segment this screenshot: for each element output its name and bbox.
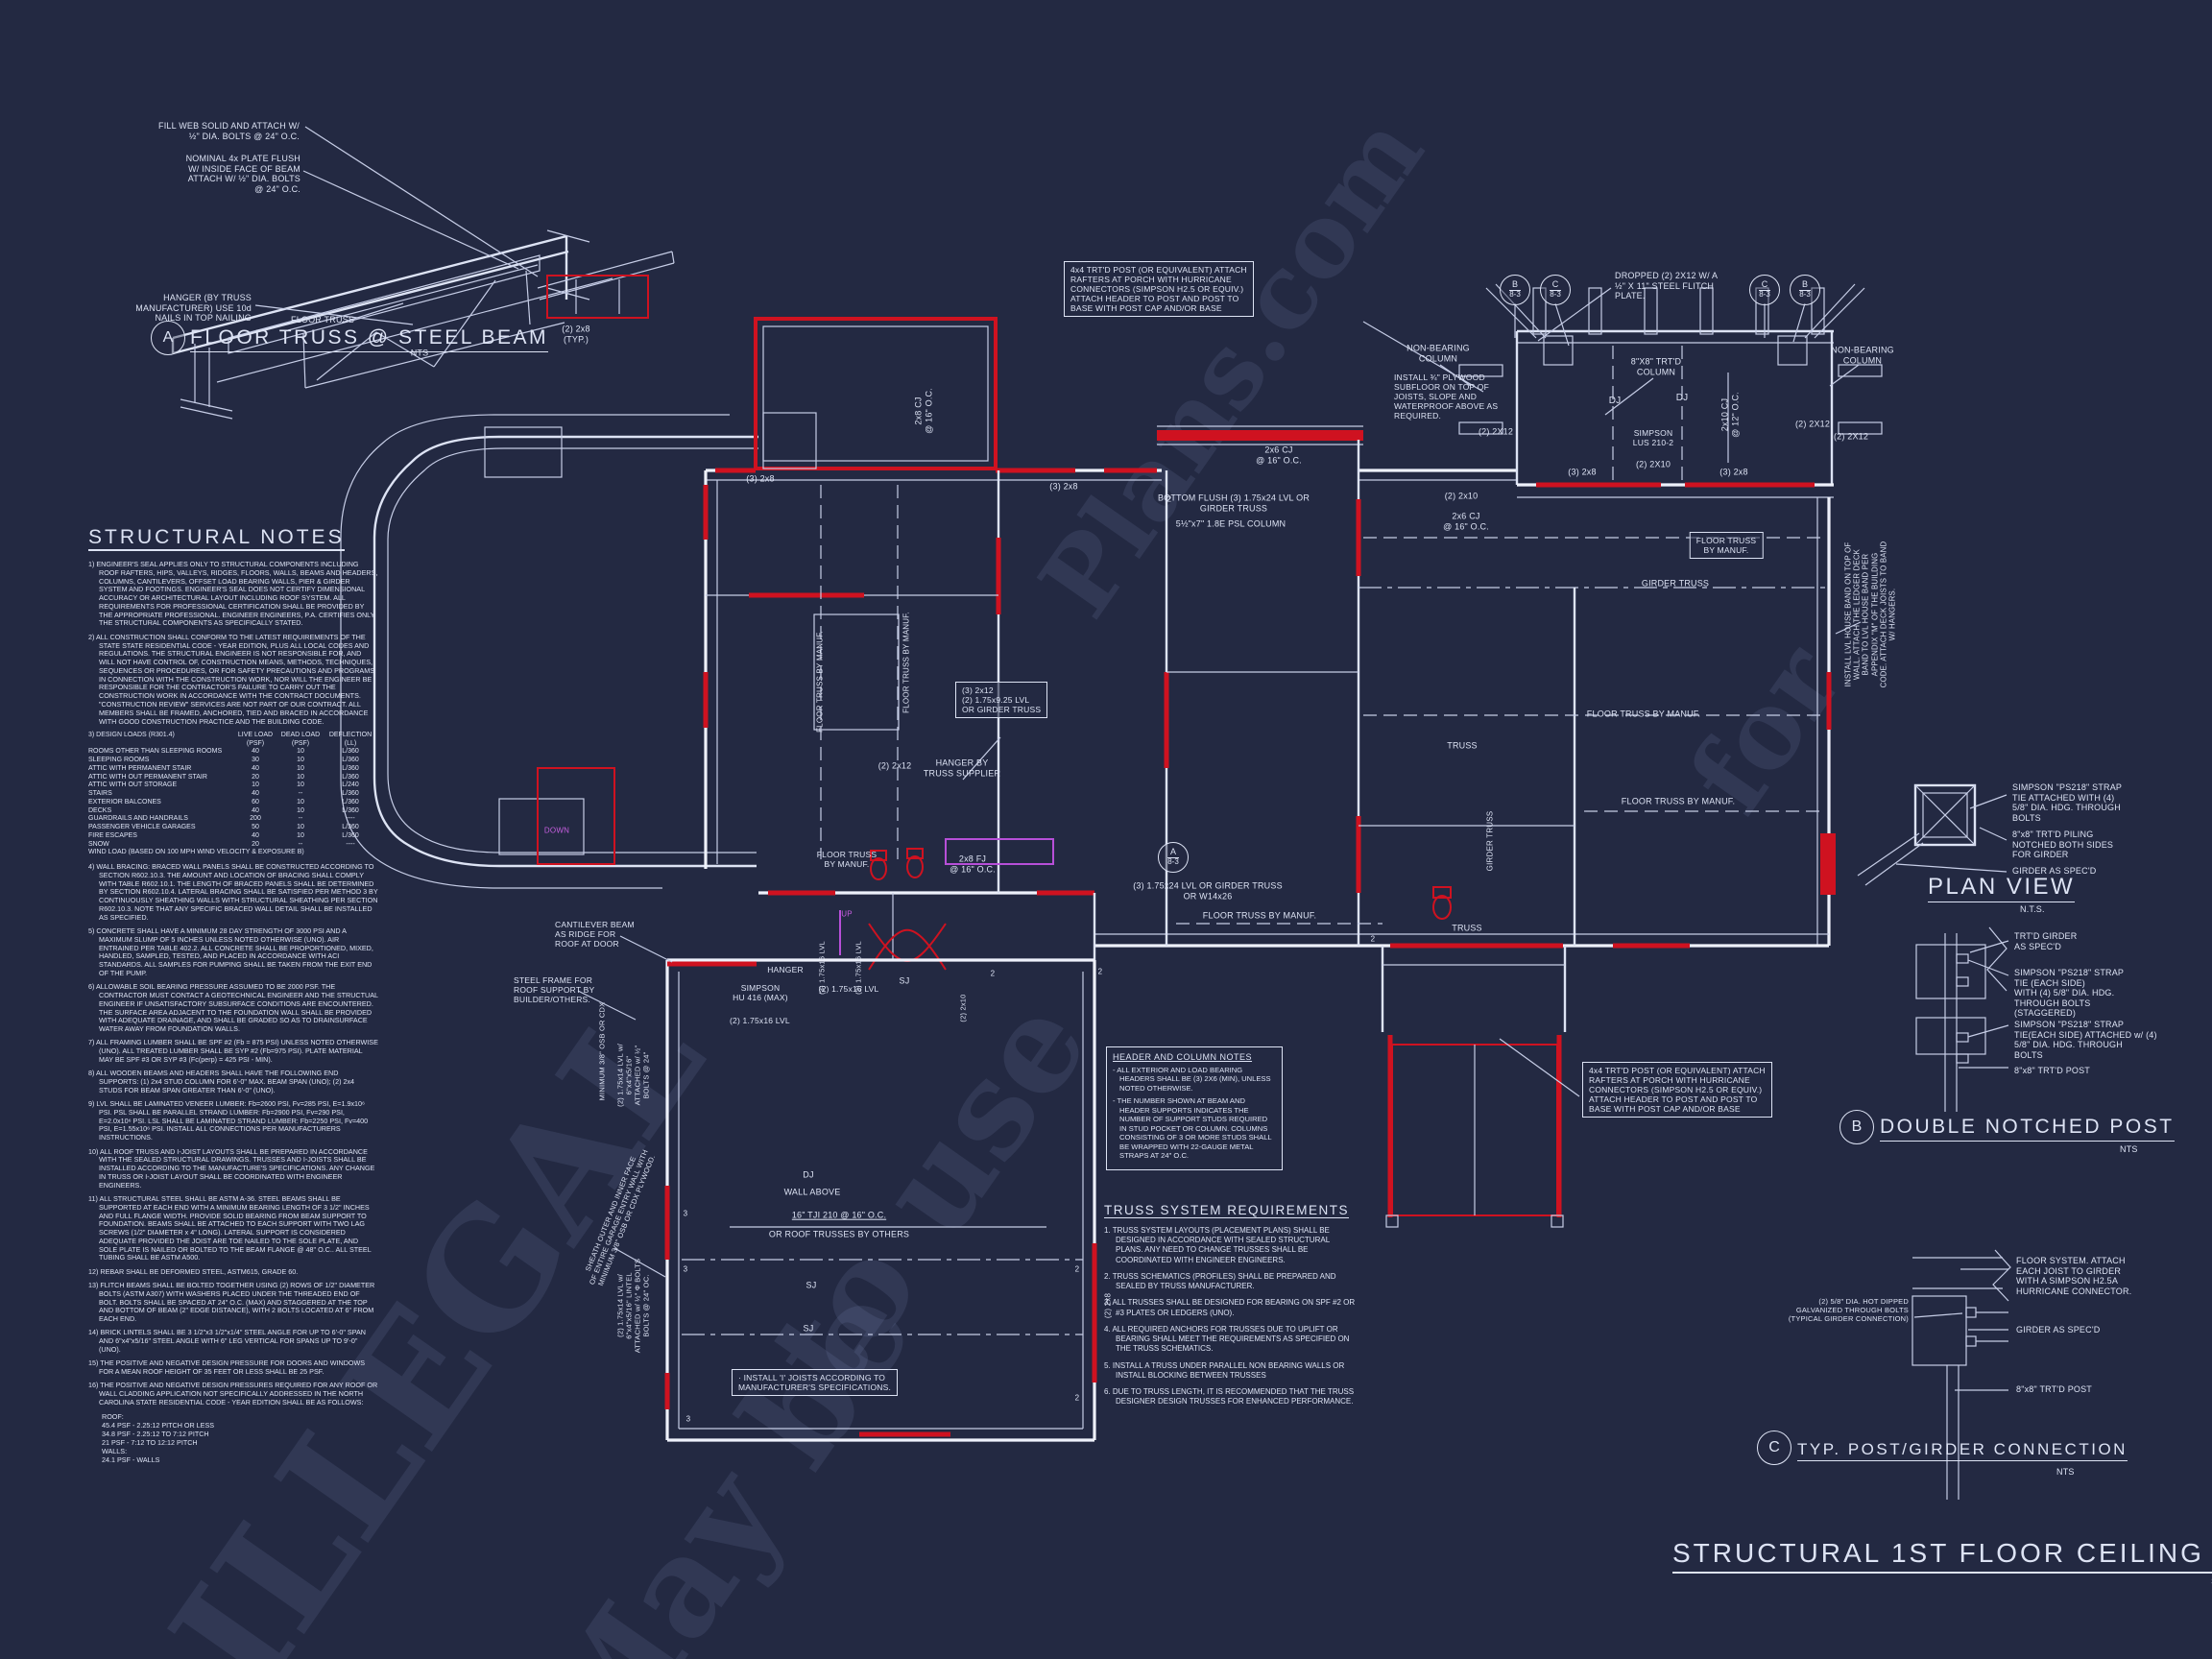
plan-label: BOTTOM FLUSH (3) 1.75x24 LVL OR GIRDER T… — [1158, 493, 1310, 513]
plan-label: SIMPSON "PS218" STRAP TIE(EACH SIDE) ATT… — [2014, 1020, 2157, 1060]
plan-label: 8"x8" TRT'D POST — [2016, 1384, 2092, 1395]
design-loads-table: 3) DESIGN LOADS (R301.4)LIVE LOADDEAD LO… — [88, 732, 378, 857]
plan-label: 2x6 CJ @ 16" O.C. — [1443, 511, 1489, 531]
plan-label: INSTALL LVL HOUSE BAND ON TOP OF WALL. A… — [1843, 541, 1896, 688]
detail-title: DOUBLE NOTCHED POST — [1880, 1116, 2175, 1142]
plan-label: (2) 5/8" DIA. HOT DIPPED GALVANIZED THRO… — [1789, 1298, 1909, 1324]
structural-note: 13) FLITCH BEAMS SHALL BE BOLTED TOGETHE… — [88, 1282, 378, 1324]
plan-label: 3 — [684, 1264, 688, 1273]
plan-label: TRT'D GIRDER AS SPEC'D — [2014, 931, 2077, 951]
header-column-note: - ALL EXTERIOR AND LOAD BEARING HEADERS … — [1113, 1066, 1276, 1093]
structural-note: WALLS: — [88, 1447, 378, 1455]
plan-label: 8"x8" TRT'D POST — [2014, 1066, 2090, 1076]
plan-label: 5½"x7" 1.8E PSL COLUMN — [1176, 519, 1286, 530]
plan-label: (2) 2X12 — [1795, 420, 1830, 430]
plan-label: WALL ABOVE — [784, 1188, 841, 1198]
detail-title: TYP. POST/GIRDER CONNECTION — [1797, 1440, 2128, 1461]
plan-label: (2) 2X12 — [1479, 427, 1513, 438]
plan-label: FLOOR TRUSS BY MANUF. — [817, 850, 878, 869]
plan-label: FLOOR TRUSS BY MANUF. — [902, 612, 910, 713]
plan-label: FLOOR TRUSS BY MANUF. — [1203, 911, 1316, 922]
detail-title: PLAN VIEW — [1928, 874, 2075, 902]
plan-label: 2x8 FJ @ 16" O.C. — [950, 854, 996, 874]
plan-label: (3) 2x8 — [1568, 468, 1596, 478]
plan-label: (2) 1.75x16 LVL — [819, 984, 879, 994]
title-block: STRUCTURAL 1ST FLOOR CEILING PLAN SCALE:… — [1672, 1538, 2212, 1587]
section-bubble: C — [1757, 1431, 1791, 1465]
section-bubble: C8-3 — [1749, 275, 1780, 305]
plan-label: NOMINAL 4x PLATE FLUSH W/ INSIDE FACE OF… — [186, 154, 301, 194]
section-bubble: A8-3 — [1158, 842, 1189, 873]
structural-note: 24.1 PSF - WALLS — [88, 1455, 378, 1464]
plan-label: 2x8 CJ @ 16" O.C. — [913, 388, 933, 434]
plan-label: NTS — [2120, 1144, 2138, 1155]
section-bubble: C8-3 — [1540, 275, 1571, 305]
structural-note: ROOF: — [88, 1412, 378, 1421]
structural-note: 14) BRICK LINTELS SHALL BE 3 1/2"x3 1/2"… — [88, 1329, 378, 1354]
plan-label: FLOOR SYSTEM. ATTACH EACH JOIST TO GIRDE… — [2016, 1256, 2131, 1296]
plan-label: 2 — [1098, 967, 1103, 975]
plan-label: 2 — [1371, 934, 1376, 943]
truss-requirement: 6. DUE TO TRUSS LENGTH, IT IS RECOMMENDE… — [1104, 1387, 1356, 1407]
truss-requirement: 1. TRUSS SYSTEM LAYOUTS (PLACEMENT PLANS… — [1104, 1226, 1356, 1265]
plan-label: (2) 1.75x16 LVL — [730, 1016, 790, 1025]
structural-note: 9) LVL SHALL BE LAMINATED VENEER LUMBER:… — [88, 1100, 378, 1142]
plan-label: (2) 1.75x14 LVL w/ 6"x4"x5/16" LINTEL AT… — [616, 1259, 650, 1353]
section-bubble: B8-3 — [1500, 275, 1530, 305]
plan-label: UP — [841, 909, 853, 918]
plan-label: SIMPSON LUS 210-2 — [1633, 428, 1673, 447]
plan-label: HANGER (BY TRUSS MANUFACTURER) USE 10d N… — [135, 293, 252, 324]
plan-label: SIMPSON "PS218" STRAP TIE (EACH SIDE) WI… — [2014, 968, 2124, 1019]
detail-c-drawing — [1912, 1250, 2010, 1500]
truss-requirements-list: 1. TRUSS SYSTEM LAYOUTS (PLACEMENT PLANS… — [1104, 1226, 1356, 1407]
plan-label: FLOOR TRUSS BY MANUF. — [815, 631, 824, 733]
plan-label: DROPPED (2) 2X12 W/ A ½" X 11" STEEL FLI… — [1615, 271, 1718, 301]
plan-label: DJ — [1676, 393, 1689, 404]
plan-label: NON-BEARING COLUMN — [1831, 345, 1894, 365]
plan-label: 2 — [1075, 1393, 1080, 1402]
plan-label: OR ROOF TRUSSES BY OTHERS — [769, 1230, 909, 1240]
plan-label: SJ — [804, 1324, 814, 1334]
detail-b-drawing — [1916, 927, 2008, 1112]
plan-label: GIRDER AS SPEC'D — [2016, 1325, 2100, 1335]
structural-notes-panel: STRUCTURAL NOTES 1) ENGINEER'S SEAL APPL… — [88, 526, 378, 1464]
truss-requirement: 2. TRUSS SCHEMATICS (PROFILES) SHALL BE … — [1104, 1272, 1356, 1291]
plan-label: (3) 2x8 — [746, 474, 774, 485]
truss-requirement: 5. INSTALL A TRUSS UNDER PARALLEL NON BE… — [1104, 1361, 1356, 1381]
plan-label: DJ — [803, 1170, 813, 1181]
truss-requirement: 4. ALL REQUIRED ANCHORS FOR TRUSSES DUE … — [1104, 1325, 1356, 1355]
plan-label: FLOOR TRUSS BY MANUF. — [1622, 797, 1735, 807]
structural-note: 2) ALL CONSTRUCTION SHALL CONFORM TO THE… — [88, 634, 378, 727]
structural-note: 4) WALL BRACING: BRACED WALL PANELS SHAL… — [88, 863, 378, 922]
plan-label: (2) 2x8 (TYP.) — [562, 324, 589, 344]
plan-label: (3) 1.75x24 LVL OR GIRDER TRUSS OR W14x2… — [1133, 880, 1283, 901]
plan-label: NON-BEARING COLUMN — [1407, 343, 1470, 363]
plan-label: CANTILEVER BEAM AS RIDGE FOR ROOF AT DOO… — [555, 920, 635, 949]
plan-label: 16" TJI 210 @ 16" O.C. — [792, 1211, 886, 1221]
truss-system-requirements: TRUSS SYSTEM REQUIREMENTS 1. TRUSS SYSTE… — [1104, 1202, 1356, 1414]
header-column-notes-box: HEADER AND COLUMN NOTES - ALL EXTERIOR A… — [1106, 1046, 1283, 1170]
plan-label: 4x4 TRT'D POST (OR EQUIVALENT) ATTACH RA… — [1064, 261, 1254, 317]
detail-title: FLOOR TRUSS @ STEEL BEAM — [190, 326, 548, 352]
structural-note: 6) ALLOWABLE SOIL BEARING PRESSURE ASSUM… — [88, 983, 378, 1034]
plan-label: (3) 2x12 (2) 1.75x9.25 LVL OR GIRDER TRU… — [955, 682, 1047, 718]
truss-requirements-title: TRUSS SYSTEM REQUIREMENTS — [1104, 1203, 1349, 1218]
header-column-notes-title: HEADER AND COLUMN NOTES — [1113, 1052, 1276, 1062]
structural-note: 1) ENGINEER'S SEAL APPLIES ONLY TO STRUC… — [88, 561, 378, 628]
plan-label: 2x10 CJ @ 12" O.C. — [1719, 392, 1740, 438]
structural-note: 16) THE POSITIVE AND NEGATIVE DESIGN PRE… — [88, 1382, 378, 1407]
structural-note: 21 PSF - 7:12 TO 12:12 PITCH — [88, 1438, 378, 1447]
plan-label: 2 — [991, 969, 996, 977]
plan-label: (3) 2x8 — [1719, 468, 1747, 478]
sheet-scale: SCALE:3/16"=1'-0" — [1672, 1576, 2212, 1587]
plan-label: NTS — [411, 349, 429, 359]
plan-label: TRUSS — [1447, 741, 1478, 752]
plan-label: · INSTALL 'I' JOISTS ACCORDING TO MANUFA… — [732, 1369, 898, 1396]
header-column-note: - THE NUMBER SHOWN AT BEAM AND HEADER SU… — [1113, 1096, 1276, 1160]
section-bubble: B8-3 — [1790, 275, 1820, 305]
plan-label: (2) 2X12 — [1834, 432, 1868, 443]
plan-label: 4x4 TRT'D POST (OR EQUIVALENT) ATTACH RA… — [1582, 1062, 1772, 1118]
plan-label: 8"x8" TRT'D PILING NOTCHED BOTH SIDES FO… — [2012, 829, 2113, 860]
structural-note: 5) CONCRETE SHALL HAVE A MINIMUM 28 DAY … — [88, 927, 378, 978]
plan-label: DOWN — [544, 826, 569, 834]
plan-label: (2) 2x10 — [960, 994, 969, 1022]
plan-label: FILL WEB SOLID AND ATTACH W/ ½" DIA. BOL… — [158, 121, 300, 141]
structural-note: 10) ALL ROOF TRUSS AND I-JOIST LAYOUTS S… — [88, 1148, 378, 1190]
plan-label: NTS — [2056, 1467, 2075, 1478]
structural-notes-list: 1) ENGINEER'S SEAL APPLIES ONLY TO STRUC… — [88, 561, 378, 1464]
plan-label: STEEL FRAME FOR ROOF SUPPORT BY BUILDER/… — [514, 975, 594, 1004]
plan-label: FLOOR TRUSS BY MANUF. — [1690, 532, 1764, 559]
plan-label: 2 — [1167, 494, 1172, 503]
structural-note: 34.8 PSF - 2.25:12 TO 7:12 PITCH — [88, 1430, 378, 1438]
plan-label: GIRDER TRUSS — [1485, 811, 1494, 872]
plan-label: FLOOR TRUSS BY MANUF. — [1587, 709, 1700, 720]
section-bubble: A — [151, 321, 185, 355]
header-column-notes-list: - ALL EXTERIOR AND LOAD BEARING HEADERS … — [1113, 1066, 1276, 1161]
plan-label: TRUSS — [1452, 924, 1482, 934]
plan-label: N.T.S. — [2020, 904, 2045, 915]
plan-label: GIRDER TRUSS — [1642, 579, 1709, 589]
plan-label: DJ — [1609, 396, 1622, 407]
structural-notes-title: STRUCTURAL NOTES — [88, 526, 345, 551]
plan-label: SJ — [806, 1281, 817, 1291]
structural-note: 7) ALL FRAMING LUMBER SHALL BE SPF #2 (F… — [88, 1039, 378, 1064]
plan-label: MINIMUM 3/8" OSB OR CDX — [599, 1002, 608, 1101]
plan-label: 3 — [684, 1209, 688, 1217]
plan-label: (3) 2x8 — [1049, 482, 1077, 493]
plan-label: SJ — [900, 976, 910, 987]
structural-note: 15) THE POSITIVE AND NEGATIVE DESIGN PRE… — [88, 1359, 378, 1377]
structural-note: 12) REBAR SHALL BE DEFORMED STEEL, ASTM6… — [88, 1268, 378, 1277]
plan-view-detail-drawing — [1858, 785, 2007, 885]
plan-label: 3 — [686, 1414, 691, 1423]
section-bubble: B — [1839, 1110, 1874, 1144]
plan-label: 2 — [1075, 1264, 1080, 1273]
plan-label: SIMPSON "PS218" STRAP TIE ATTACHED WITH … — [2012, 782, 2122, 823]
structural-note: 45.4 PSF - 2.25:12 PITCH OR LESS — [88, 1421, 378, 1430]
plan-label: (2) 2x12 — [878, 761, 912, 772]
plan-label: (2) 2X10 — [1636, 460, 1671, 470]
plan-label: (2) 1.75x14 LVL w/ 6"x4"x5/16" ATTACHED … — [616, 1044, 650, 1107]
structural-note: 8) ALL WOODEN BEAMS AND HEADERS SHALL HA… — [88, 1070, 378, 1094]
plan-label: 8"X8" TRT'D COLUMN — [1631, 356, 1682, 376]
blueprint-sheet: ILLEGALto useMay bePlans.comfor — [0, 0, 2212, 1659]
truss-requirement: 3. ALL TRUSSES SHALL BE DESIGNED FOR BEA… — [1104, 1298, 1356, 1317]
plan-label: HANGER BY TRUSS SUPPLIER — [924, 757, 1000, 778]
plan-label: 2x6 CJ @ 16" O.C. — [1256, 445, 1302, 465]
plan-label: SIMPSON HU 416 (MAX) — [733, 983, 788, 1002]
plan-label: FLOOR TRUSS — [291, 315, 354, 325]
structural-note: 11) ALL STRUCTURAL STEEL SHALL BE ASTM A… — [88, 1195, 378, 1262]
plan-label: HANGER — [767, 965, 804, 974]
plan-label: (2) 2x10 — [1445, 492, 1479, 502]
sheet-title: STRUCTURAL 1ST FLOOR CEILING PLAN — [1672, 1538, 2212, 1574]
plan-label: INSTALL ¾" PLYWOOD SUBFLOOR ON TOP OF JO… — [1394, 373, 1498, 421]
